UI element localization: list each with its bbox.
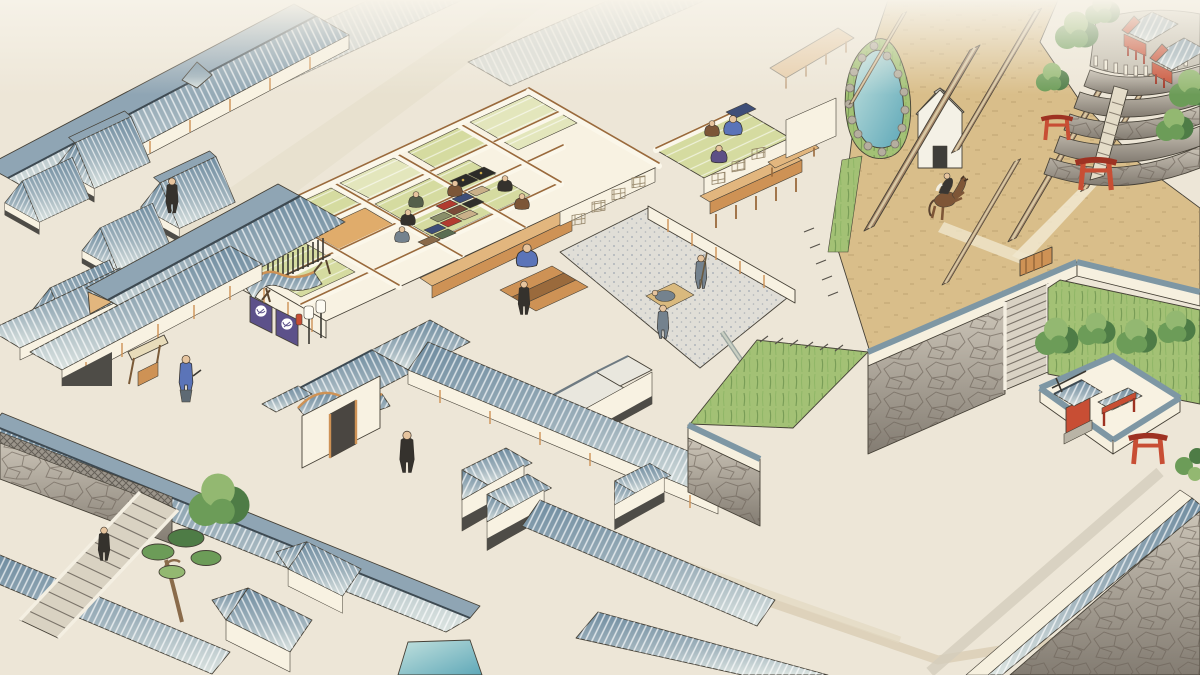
bowing-figure: [655, 291, 675, 302]
illustration-root: Bird's-eye woodblock-style illustration …: [0, 0, 1200, 675]
garden-pond: [398, 640, 482, 675]
edo-compound-illustration: Bird's-eye woodblock-style illustration …: [0, 0, 1200, 675]
red-lantern: [296, 314, 302, 325]
mist-overlay: [0, 0, 1200, 95]
